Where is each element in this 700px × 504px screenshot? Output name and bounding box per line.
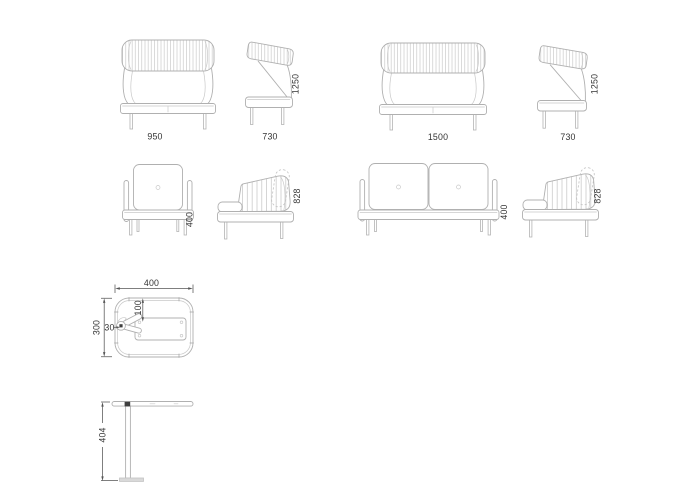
dim-label-armchair-high-width: 950 [147,132,162,142]
dim-label-table-depth: 300 [92,320,102,335]
furniture-dimension-drawing: 950 730 1250 1500 730 1250 [0,0,700,504]
dim-label-sofa-high-width: 1500 [428,132,448,142]
dim-label-plate-inset: 30 [104,322,114,332]
dim-label-armchair-high-depth: 730 [262,132,277,142]
dim-label-sofa-high-height: 1250 [590,74,600,94]
dim-label-sofa-high-depth: 730 [560,132,575,142]
dim-label-sofa-low-seat-height: 400 [499,204,509,219]
dim-label-sofa-low-height: 828 [593,188,603,203]
dim-label-table-height: 404 [98,427,108,442]
clamp-pivot [119,324,122,327]
drawing-sheet: 950 730 1250 1500 730 1250 [0,0,700,504]
table-base [120,478,144,481]
dim-label-table-width: 400 [144,278,159,288]
dim-label-armchair-high-height: 1250 [291,74,301,94]
clamp-pivot-side [125,402,131,407]
dim-label-armchair-low-height: 828 [292,188,302,203]
dim-label-plate-offset: 100 [133,300,143,315]
dim-label-armchair-low-seat-height: 400 [185,212,195,227]
